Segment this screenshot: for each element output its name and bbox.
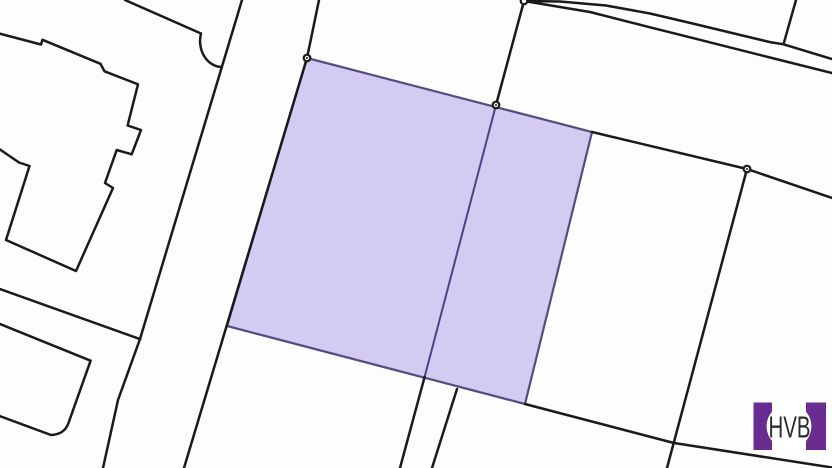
svg-text:HVB: HVB — [768, 409, 810, 444]
